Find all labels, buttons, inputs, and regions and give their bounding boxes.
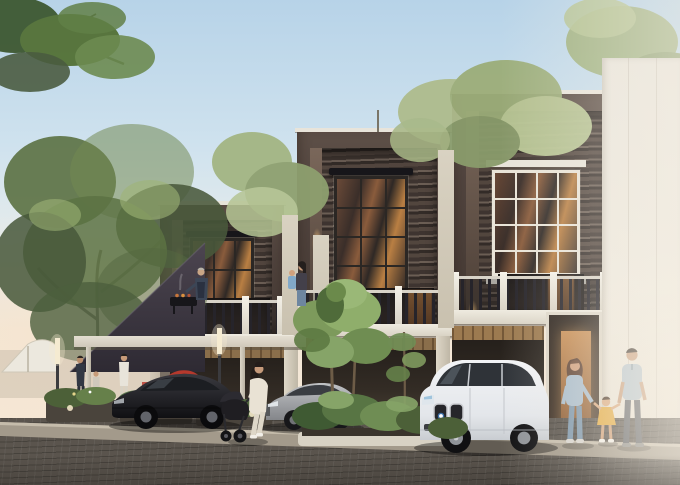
foreground-elements	[0, 0, 680, 485]
scene	[0, 0, 680, 485]
stroller-woman	[220, 362, 268, 446]
bush-front-of-suv	[428, 417, 468, 439]
black-coupe	[109, 374, 241, 433]
walking-family	[562, 348, 651, 451]
barbecue-man	[170, 268, 208, 314]
